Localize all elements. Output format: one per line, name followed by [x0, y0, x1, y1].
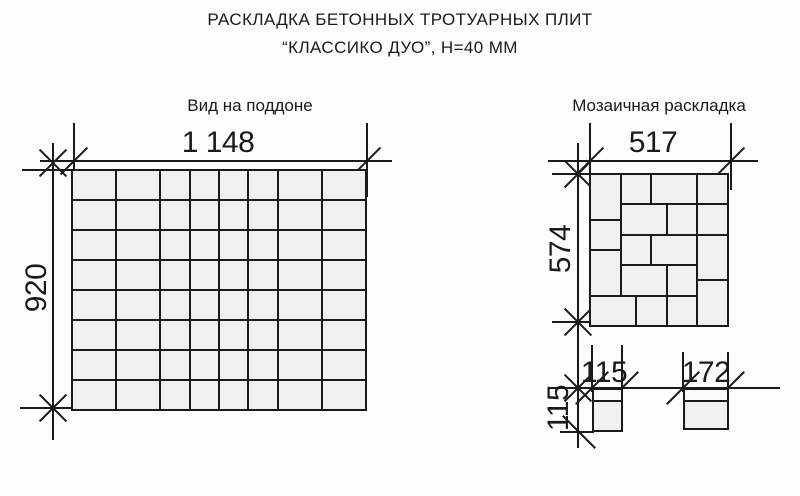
pallet-cell: [160, 260, 189, 290]
mosaic-block: [590, 250, 621, 296]
pallet-cell: [190, 230, 219, 260]
pallet-cell: [322, 170, 366, 200]
mosaic-block: [697, 204, 728, 234]
rect-slab-top-face: [685, 390, 727, 402]
pallet-cell: [190, 290, 219, 320]
pallet-cell: [160, 290, 189, 320]
pallet-cell: [190, 320, 219, 350]
pallet-cell: [278, 320, 322, 350]
pallet-view-heading: Вид на поддоне: [120, 96, 380, 116]
mosaic-bottom-extension-line: [552, 321, 594, 323]
pallet-cell: [248, 380, 277, 410]
pallet-cell: [72, 230, 116, 260]
mosaic-block: [697, 174, 728, 204]
pallet-cell: [116, 320, 160, 350]
pallet-cell: [278, 290, 322, 320]
pallet-cell: [116, 290, 160, 320]
mosaic-block: [651, 174, 697, 204]
pallet-cell: [278, 350, 322, 380]
mosaic-block: [621, 265, 667, 295]
pallet-cell: [190, 200, 219, 230]
pallet-cell: [160, 350, 189, 380]
pallet-cell: [248, 290, 277, 320]
mosaic-block: [697, 280, 728, 326]
pallet-cell: [116, 380, 160, 410]
pallet-cell: [116, 200, 160, 230]
pallet-cell: [72, 320, 116, 350]
pallet-cell: [278, 200, 322, 230]
rect-slab-drawing: [683, 388, 729, 430]
pallet-cell: [72, 170, 116, 200]
pallet-cell: [219, 200, 248, 230]
pallet-cell: [248, 320, 277, 350]
pallet-cell: [278, 230, 322, 260]
pallet-cell: [160, 170, 189, 200]
pallet-cell: [248, 350, 277, 380]
pallet-cell: [219, 170, 248, 200]
pallet-cell: [322, 320, 366, 350]
pallet-width-dimension-label: 1 148: [148, 126, 288, 160]
square-slab-height-label: 115: [544, 358, 574, 458]
pallet-cell: [116, 170, 160, 200]
mosaic-right-extension-line: [730, 123, 732, 190]
pallet-cell: [72, 260, 116, 290]
pallet-cell: [219, 320, 248, 350]
mosaic-block: [621, 174, 652, 204]
pallet-cell: [322, 260, 366, 290]
pallet-cell: [160, 380, 189, 410]
square-slab-top-face: [594, 390, 621, 402]
pallet-width-dimension-line: [40, 160, 392, 162]
pallet-cell: [219, 350, 248, 380]
pallet-cell: [278, 380, 322, 410]
mosaic-top-extension-line: [552, 173, 594, 175]
pallet-cell: [116, 260, 160, 290]
mosaic-block: [621, 235, 652, 265]
mosaic-grid: [589, 173, 729, 327]
pallet-cell: [219, 380, 248, 410]
mosaic-block: [667, 296, 698, 326]
pallet-cell: [160, 200, 189, 230]
pallet-cell: [322, 230, 366, 260]
pallet-cell: [322, 290, 366, 320]
pallet-cell: [248, 200, 277, 230]
rect-slab-width-label: 172: [656, 356, 756, 390]
mosaic-block: [667, 204, 698, 234]
mosaic-block: [636, 296, 667, 326]
pallet-cell: [160, 320, 189, 350]
mosaic-view-heading: Мозаичная раскладка: [529, 96, 789, 116]
pallet-cell: [248, 170, 277, 200]
pallet-grid: [71, 169, 367, 411]
pallet-cell: [160, 230, 189, 260]
mosaic-block: [590, 296, 636, 326]
pallet-cell: [116, 230, 160, 260]
mosaic-block: [697, 235, 728, 281]
pallet-cell: [278, 170, 322, 200]
mosaic-block: [651, 235, 697, 265]
pallet-cell: [190, 350, 219, 380]
pallet-cell: [248, 230, 277, 260]
pallet-cell: [219, 260, 248, 290]
pallet-cell: [219, 230, 248, 260]
pallet-cell: [190, 380, 219, 410]
pallet-cell: [72, 290, 116, 320]
square-slab-drawing: [592, 388, 623, 432]
pallet-cell: [322, 350, 366, 380]
pallet-cell: [190, 170, 219, 200]
mosaic-height-dimension-label: 574: [546, 199, 576, 299]
pallet-cell: [248, 260, 277, 290]
pallet-cell: [72, 380, 116, 410]
pallet-cell: [278, 260, 322, 290]
pallet-cell: [190, 260, 219, 290]
pallet-cell: [322, 380, 366, 410]
drawing-title-line2: “КЛАССИКО ДУО”, Н=40 ММ: [0, 38, 800, 58]
drawing-canvas: РАСКЛАДКА БЕТОННЫХ ТРОТУАРНЫХ ПЛИТ “КЛАС…: [0, 0, 800, 496]
mosaic-block: [590, 174, 621, 220]
pallet-height-dimension-label: 920: [22, 238, 52, 338]
pallet-cell: [72, 200, 116, 230]
mosaic-block: [621, 204, 667, 234]
pallet-cell: [322, 200, 366, 230]
mosaic-width-dimension-line: [548, 160, 758, 162]
mosaic-block: [590, 220, 621, 250]
drawing-title-line1: РАСКЛАДКА БЕТОННЫХ ТРОТУАРНЫХ ПЛИТ: [0, 10, 800, 30]
pallet-cell: [219, 290, 248, 320]
pallet-cell: [72, 350, 116, 380]
mosaic-block: [667, 265, 698, 295]
pallet-cell: [116, 350, 160, 380]
mosaic-width-dimension-label: 517: [583, 126, 723, 160]
